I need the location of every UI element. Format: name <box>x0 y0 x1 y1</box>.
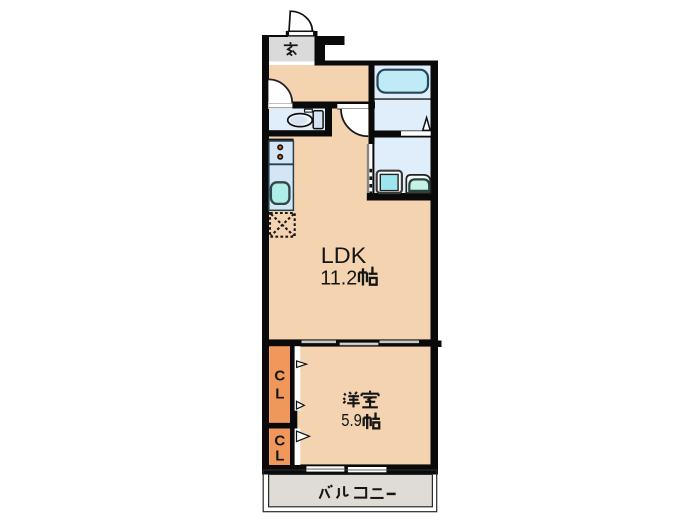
svg-text:C: C <box>274 368 285 385</box>
svg-text:5.9: 5.9 <box>341 410 362 430</box>
svg-text:L: L <box>275 448 284 465</box>
svg-text:11.2: 11.2 <box>320 267 357 290</box>
svg-text:L: L <box>275 386 284 403</box>
svg-text:LDK: LDK <box>321 243 367 268</box>
